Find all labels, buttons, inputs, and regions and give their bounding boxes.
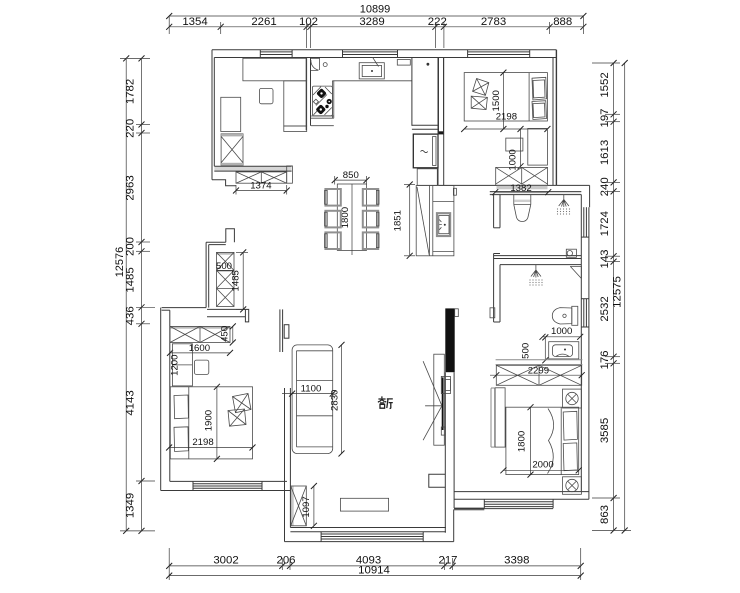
svg-text:2783: 2783 [481,16,506,28]
svg-text:200: 200 [125,237,137,256]
svg-text:2000: 2000 [532,459,553,470]
svg-text:863: 863 [599,505,611,524]
svg-text:1349: 1349 [125,493,137,518]
svg-text:2261: 2261 [251,16,276,28]
svg-text:1374: 1374 [250,180,272,191]
svg-text:102: 102 [299,16,318,28]
svg-text:2299: 2299 [528,366,549,377]
svg-text:2963: 2963 [125,175,137,200]
svg-text:143: 143 [599,249,611,268]
svg-text:1851: 1851 [393,210,404,231]
svg-text:1100: 1100 [301,384,322,395]
svg-text:850: 850 [343,170,359,181]
svg-text:1613: 1613 [599,140,611,165]
svg-text:1900: 1900 [203,410,214,431]
svg-text:10899: 10899 [360,4,391,16]
svg-text:500: 500 [216,261,232,272]
svg-text:1800: 1800 [517,431,528,452]
svg-text:12575: 12575 [612,276,624,308]
svg-text:500: 500 [521,343,532,359]
svg-text:240: 240 [599,177,611,196]
svg-text:206: 206 [276,554,295,566]
svg-text:217: 217 [438,554,457,566]
svg-text:1200: 1200 [169,355,180,376]
svg-text:2198: 2198 [496,112,517,123]
svg-text:3289: 3289 [359,16,384,28]
svg-text:197: 197 [599,108,611,127]
svg-text:1000: 1000 [551,326,572,337]
svg-text:888: 888 [553,16,572,28]
svg-text:2532: 2532 [599,296,611,321]
svg-text:1782: 1782 [125,79,137,104]
svg-text:2198: 2198 [192,437,213,448]
svg-text:436: 436 [125,306,137,325]
svg-text:1485: 1485 [125,267,137,292]
svg-text:3398: 3398 [504,554,529,566]
svg-text:220: 220 [125,119,137,138]
svg-text:1097: 1097 [301,496,312,517]
svg-text:450: 450 [220,326,231,342]
svg-text:10914: 10914 [358,565,390,577]
svg-text:1724: 1724 [599,211,611,236]
svg-text:3002: 3002 [213,554,238,566]
svg-text:4143: 4143 [125,390,137,415]
svg-text:1500: 1500 [491,90,502,111]
svg-text:176: 176 [599,350,611,369]
svg-text:3585: 3585 [599,418,611,443]
svg-text:1354: 1354 [182,16,207,28]
svg-text:1552: 1552 [599,72,611,97]
svg-text:1485: 1485 [231,270,242,291]
svg-text:2830: 2830 [329,390,340,411]
